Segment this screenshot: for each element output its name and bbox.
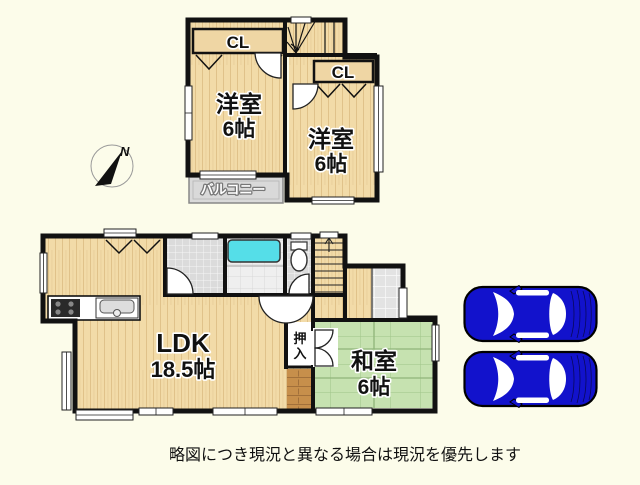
kitchen-counter bbox=[48, 296, 140, 320]
disclaimer-note: 略図につき現況と異なる場合は現況を優先します bbox=[169, 446, 521, 464]
washitsu-size: 6帖 bbox=[358, 376, 391, 399]
ldk-size: 18.5帖 bbox=[151, 357, 216, 382]
entrance-tile bbox=[372, 267, 403, 319]
bathtub bbox=[228, 240, 280, 262]
parking-car-1 bbox=[465, 286, 597, 343]
room-west-right-name: 洋室 bbox=[308, 126, 354, 152]
floorplan-1f: LDK 18.5帖 和室 6帖 押 入 bbox=[40, 229, 439, 420]
oshiire-label-1: 押 bbox=[293, 331, 306, 346]
north-arrow-icon bbox=[95, 151, 122, 186]
toilet bbox=[291, 242, 307, 271]
closet-right-label: CL bbox=[332, 63, 355, 82]
room-west-right-size: 6帖 bbox=[315, 153, 348, 176]
oshiire-label-2: 入 bbox=[293, 346, 306, 361]
washitsu-double-door bbox=[313, 328, 338, 367]
car-side-window bbox=[516, 398, 549, 404]
ldk-name: LDK bbox=[156, 328, 210, 358]
car-side-window bbox=[516, 355, 549, 361]
compass: N bbox=[91, 144, 133, 187]
room-west-left-size: 6帖 bbox=[223, 118, 256, 141]
faucet bbox=[114, 310, 121, 317]
car-side-window bbox=[516, 333, 549, 339]
closet-left-label: CL bbox=[227, 33, 250, 52]
north-label: N bbox=[120, 144, 130, 159]
balcony-label: バルコニー bbox=[201, 182, 266, 197]
parking-car-2 bbox=[465, 351, 597, 408]
dark-wood-floor bbox=[287, 369, 312, 409]
floorplan-canvas: CL CL 洋室 6帖 洋室 6帖 バルコニー N bbox=[0, 0, 640, 480]
entrance-door bbox=[399, 288, 407, 318]
washitsu-name: 和室 bbox=[351, 348, 397, 374]
car-side-window bbox=[516, 290, 549, 296]
room-west-left-name: 洋室 bbox=[216, 91, 262, 117]
stove bbox=[51, 299, 80, 317]
floorplan-2f: CL CL 洋室 6帖 洋室 6帖 バルコニー bbox=[185, 17, 383, 204]
